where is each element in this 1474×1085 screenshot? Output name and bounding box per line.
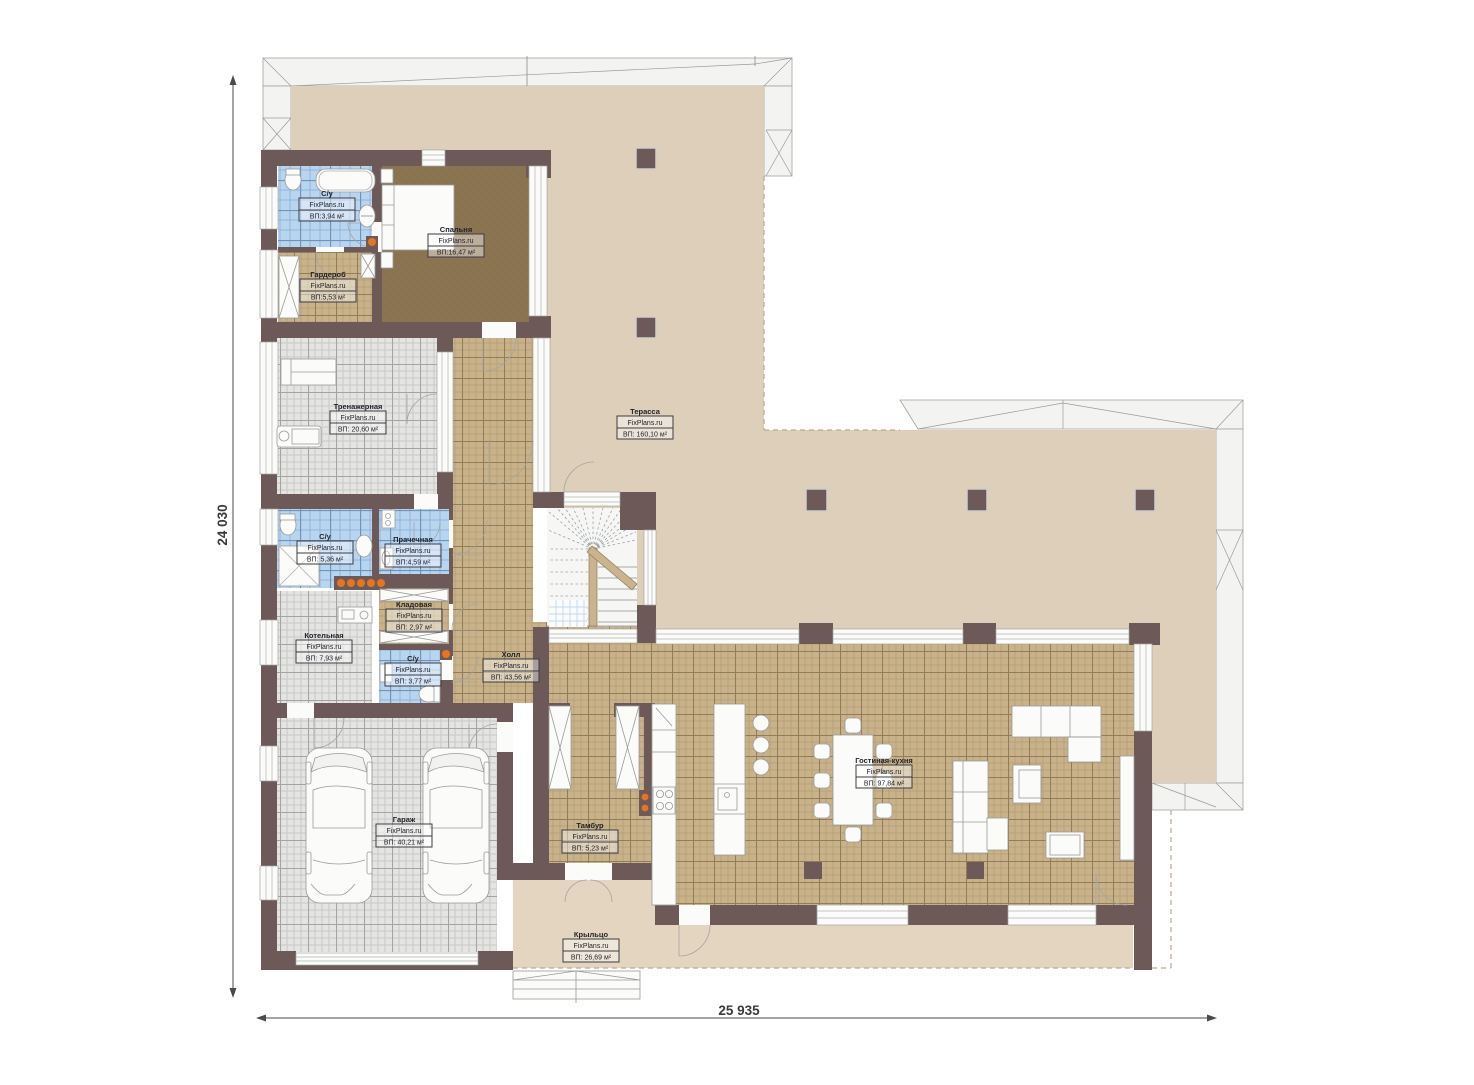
svg-text:Кладовая: Кладовая (396, 600, 432, 609)
svg-text:С/у: С/у (319, 532, 332, 541)
svg-text:24 030: 24 030 (215, 504, 230, 545)
svg-text:Спальня: Спальня (440, 225, 472, 234)
svg-text:ВП: 5,23 м²: ВП: 5,23 м² (572, 846, 609, 853)
svg-text:ВП:3,94 м²: ВП:3,94 м² (310, 214, 345, 221)
svg-text:ВП:16,47 м²: ВП:16,47 м² (437, 250, 476, 257)
svg-text:FixPlans.ru: FixPlans.ru (395, 667, 430, 674)
svg-text:Прачечная: Прачечная (393, 535, 433, 544)
svg-text:FixPlans.ru: FixPlans.ru (396, 613, 431, 620)
svg-text:25 935: 25 935 (718, 1003, 760, 1018)
svg-text:ВП: 3,77 м²: ВП: 3,77 м² (395, 679, 432, 686)
svg-text:FixPlans.ru: FixPlans.ru (627, 420, 662, 427)
svg-text:ВП: 43,56 м²: ВП: 43,56 м² (491, 675, 532, 682)
svg-text:FixPlans.ru: FixPlans.ru (306, 644, 341, 651)
svg-text:Холл: Холл (502, 650, 521, 659)
svg-text:Гараж: Гараж (393, 815, 416, 824)
svg-text:ВП: 97,84 м²: ВП: 97,84 м² (864, 781, 905, 788)
svg-text:ВП:5,53 м²: ВП:5,53 м² (311, 295, 346, 302)
svg-text:Гардероб: Гардероб (310, 270, 346, 279)
svg-text:Крыльцо: Крыльцо (574, 930, 609, 939)
svg-text:FixPlans.ru: FixPlans.ru (493, 663, 528, 670)
svg-text:ВП:4,59 м²: ВП:4,59 м² (396, 560, 431, 567)
svg-text:ВП: 26,69 м²: ВП: 26,69 м² (571, 955, 612, 962)
svg-text:ВП: 7,93 м²: ВП: 7,93 м² (306, 656, 343, 663)
svg-text:FixPlans.ru: FixPlans.ru (310, 283, 345, 290)
svg-text:ВП: 2,97 м²: ВП: 2,97 м² (396, 625, 433, 632)
svg-text:FixPlans.ru: FixPlans.ru (573, 943, 608, 950)
svg-text:ВП: 5,36 м²: ВП: 5,36 м² (307, 557, 344, 564)
svg-text:FixPlans.ru: FixPlans.ru (307, 545, 342, 552)
svg-text:Терасса: Терасса (630, 407, 661, 416)
svg-text:FixPlans.ru: FixPlans.ru (866, 769, 901, 776)
svg-text:FixPlans.ru: FixPlans.ru (386, 828, 421, 835)
svg-text:ВП: 40,21 м²: ВП: 40,21 м² (384, 840, 425, 847)
svg-text:С/у: С/у (321, 189, 334, 198)
svg-text:ВП: 160,10 м²: ВП: 160,10 м² (623, 432, 668, 439)
svg-text:FixPlans.ru: FixPlans.ru (309, 202, 344, 209)
svg-text:Гостиная-кухня: Гостиная-кухня (855, 756, 912, 765)
svg-text:С/у: С/у (407, 654, 420, 663)
svg-text:FixPlans.ru: FixPlans.ru (572, 834, 607, 841)
svg-text:FixPlans.ru: FixPlans.ru (438, 238, 473, 245)
svg-text:ВП: 20,60 м²: ВП: 20,60 м² (338, 427, 379, 434)
svg-text:Тренажерная: Тренажерная (334, 402, 383, 411)
svg-text:Тамбур: Тамбур (576, 821, 604, 830)
svg-text:FixPlans.ru: FixPlans.ru (340, 415, 375, 422)
svg-text:Котельная: Котельная (304, 631, 343, 640)
svg-text:FixPlans.ru: FixPlans.ru (395, 548, 430, 555)
